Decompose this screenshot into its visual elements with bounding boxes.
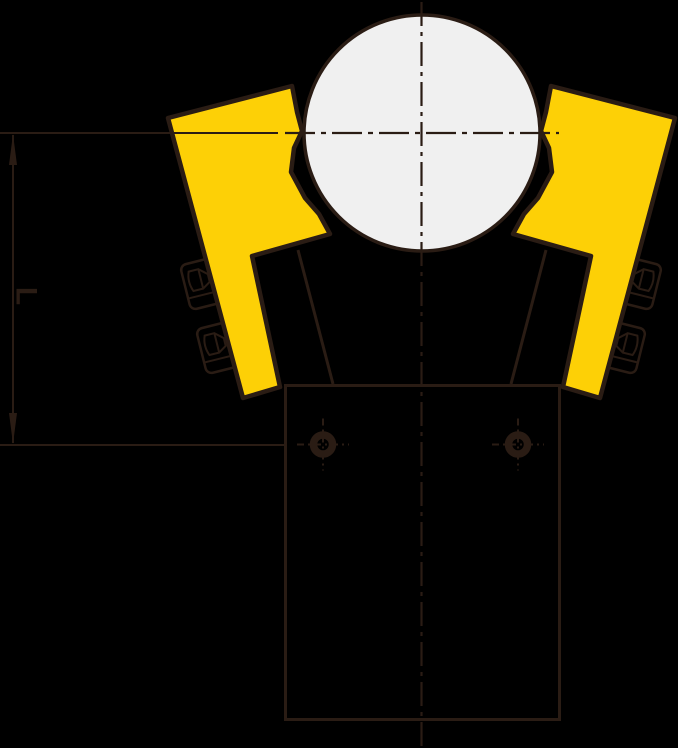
arrowhead-down-icon <box>9 413 17 444</box>
mounting-hole-right <box>492 419 544 471</box>
neck-edge-right <box>511 250 546 384</box>
arrowhead-up-icon <box>9 134 17 165</box>
mounting-hole-left <box>297 419 349 471</box>
pipe-clamp-technical-drawing: L <box>0 0 678 748</box>
neck-edge-left <box>298 250 333 384</box>
dimension-label-L: L <box>10 287 43 305</box>
